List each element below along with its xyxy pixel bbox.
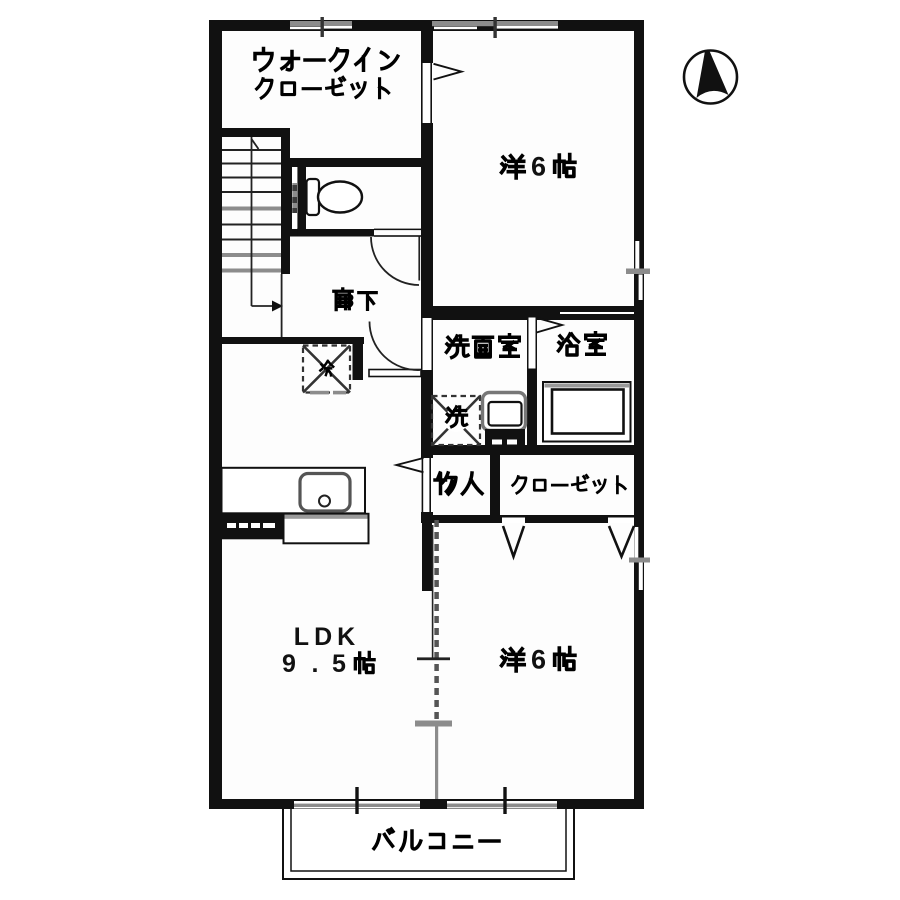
svg-text:.: . xyxy=(312,650,319,678)
svg-text:6: 6 xyxy=(531,152,546,182)
svg-text:LDK: LDK xyxy=(294,623,360,651)
svg-text:6: 6 xyxy=(531,645,546,675)
svg-text:9: 9 xyxy=(282,650,296,678)
svg-text:5: 5 xyxy=(332,650,346,678)
